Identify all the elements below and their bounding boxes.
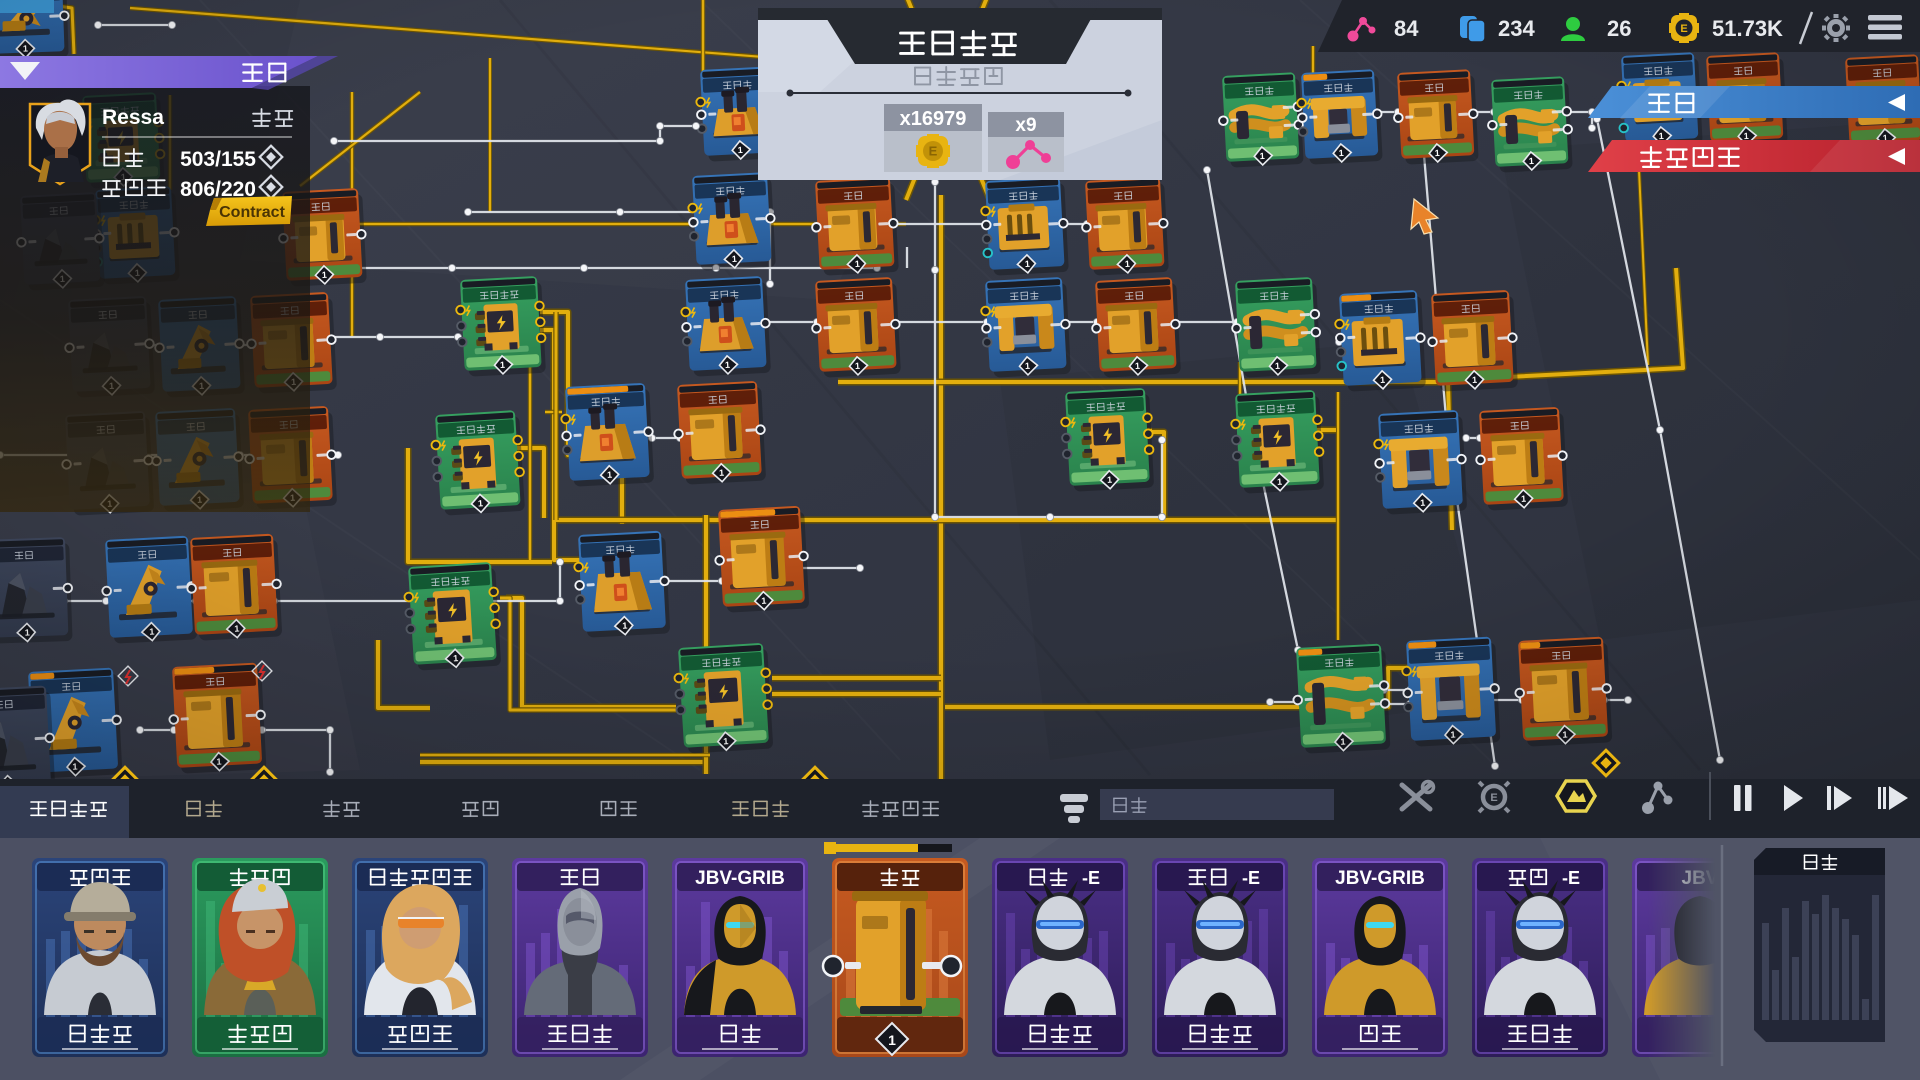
svg-text:x9: x9 [1015,115,1036,136]
svg-text:-E: -E [1242,868,1260,888]
svg-text:E: E [1490,792,1497,804]
svg-text:Ressa: Ressa [102,106,164,129]
svg-text:JBV-GRIB: JBV-GRIB [695,868,785,889]
svg-text:234: 234 [1498,16,1535,41]
svg-text:51.73K: 51.73K [1712,16,1783,41]
svg-text:-E: -E [1082,868,1100,888]
svg-text:84: 84 [1394,16,1419,41]
svg-text:E: E [1680,23,1687,35]
svg-text:JBV: JBV [1682,868,1719,889]
svg-text:-E: -E [1562,868,1580,888]
svg-text:E: E [929,144,938,159]
svg-text:Contract: Contract [219,204,285,221]
svg-text:503/155: 503/155 [180,148,256,171]
svg-text:x16979: x16979 [900,108,967,130]
svg-text:1: 1 [888,1032,896,1048]
svg-text:JBV-GRIB: JBV-GRIB [1335,868,1425,889]
svg-text:26: 26 [1607,16,1631,41]
